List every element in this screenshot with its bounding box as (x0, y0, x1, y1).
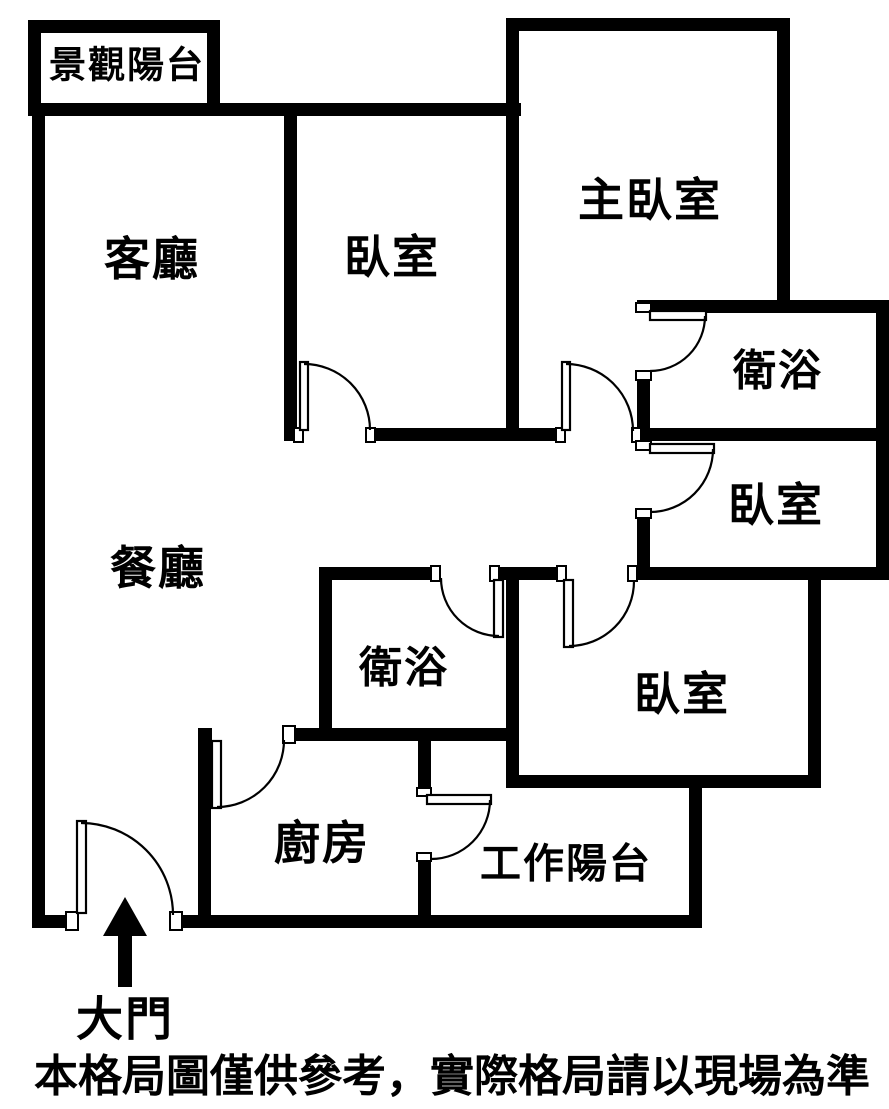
room-label-view-balcony: 景觀陽台 (49, 47, 205, 84)
wall-c-seg2 (495, 567, 562, 580)
room-label-bedroom-right: 臥室 (728, 482, 824, 528)
entrance-arrow-shaft (118, 930, 132, 987)
wall-e (506, 775, 821, 788)
door-bedroom-right (650, 444, 714, 512)
wall-balcony-right (207, 20, 220, 116)
wall-midbath-left (319, 567, 332, 741)
wall-master-top (508, 18, 790, 31)
wall-kitchen-right-seg2 (418, 858, 431, 928)
wall-workbalcony-right (689, 775, 702, 928)
jamb (636, 303, 651, 312)
jamb (490, 566, 499, 581)
wall-a-seg2 (637, 428, 889, 441)
room-label-bedroom-bottom-right: 臥室 (634, 671, 730, 717)
room-label-bathroom-middle: 衛浴 (359, 648, 449, 691)
wall-left-outer (32, 103, 45, 928)
room-label-work-balcony: 工作陽台 (480, 844, 652, 885)
door-master-bedroom (562, 362, 633, 431)
wall-master-left (506, 18, 519, 441)
room-label-bedroom-top: 臥室 (344, 234, 440, 280)
entrance-arrow (103, 897, 147, 987)
floorplan-canvas: 景觀陽台 客廳 臥室 主臥室 衛浴 臥室 餐廳 衛浴 臥室 廚房 工作陽台 大門… (0, 0, 889, 1109)
room-label-master-bedroom: 主臥室 (578, 177, 722, 223)
wall-master-right (777, 18, 790, 313)
jamb (636, 371, 651, 380)
jamb (417, 853, 431, 861)
jamb (636, 509, 651, 518)
walls (28, 18, 889, 928)
wall-d (506, 567, 519, 788)
jamb (557, 566, 566, 581)
jamb (66, 912, 78, 930)
room-label-bathroom-right: 衛浴 (733, 351, 823, 394)
room-label-kitchen: 廚房 (274, 820, 370, 866)
jamb (628, 566, 637, 581)
disclaimer-caption: 本格局圖僅供參考，實際格局請以現場為準 (34, 1055, 870, 1099)
wall-br-bedroom-right (808, 567, 821, 788)
room-label-living-room: 客廳 (104, 236, 200, 282)
wall-c-seg1 (319, 567, 437, 580)
wall-balcony-top (28, 20, 220, 33)
door-bedroom-bottom-right (564, 580, 634, 647)
jamb (170, 912, 182, 930)
door-bedroom-top (300, 362, 370, 430)
jamb (366, 428, 375, 442)
wall-kitchen-right-seg1 (418, 728, 431, 793)
wall-a-seg1 (371, 428, 558, 441)
wall-kitchen-left (198, 728, 211, 928)
wall-midbedroom-left (284, 116, 297, 441)
wall-c-seg3 (630, 567, 889, 580)
wall-balcony-left (28, 20, 41, 116)
door-kitchen (212, 740, 284, 808)
doors (77, 311, 714, 915)
jamb (431, 566, 440, 581)
jamb (636, 441, 651, 450)
room-label-dining-room: 餐廳 (110, 545, 206, 591)
door-bathroom-middle (441, 578, 503, 637)
wall-bottom-main (178, 915, 702, 928)
wall-top-main (32, 103, 521, 116)
door-bathroom-right (650, 311, 706, 371)
entrance-label: 大門 (76, 996, 174, 1043)
